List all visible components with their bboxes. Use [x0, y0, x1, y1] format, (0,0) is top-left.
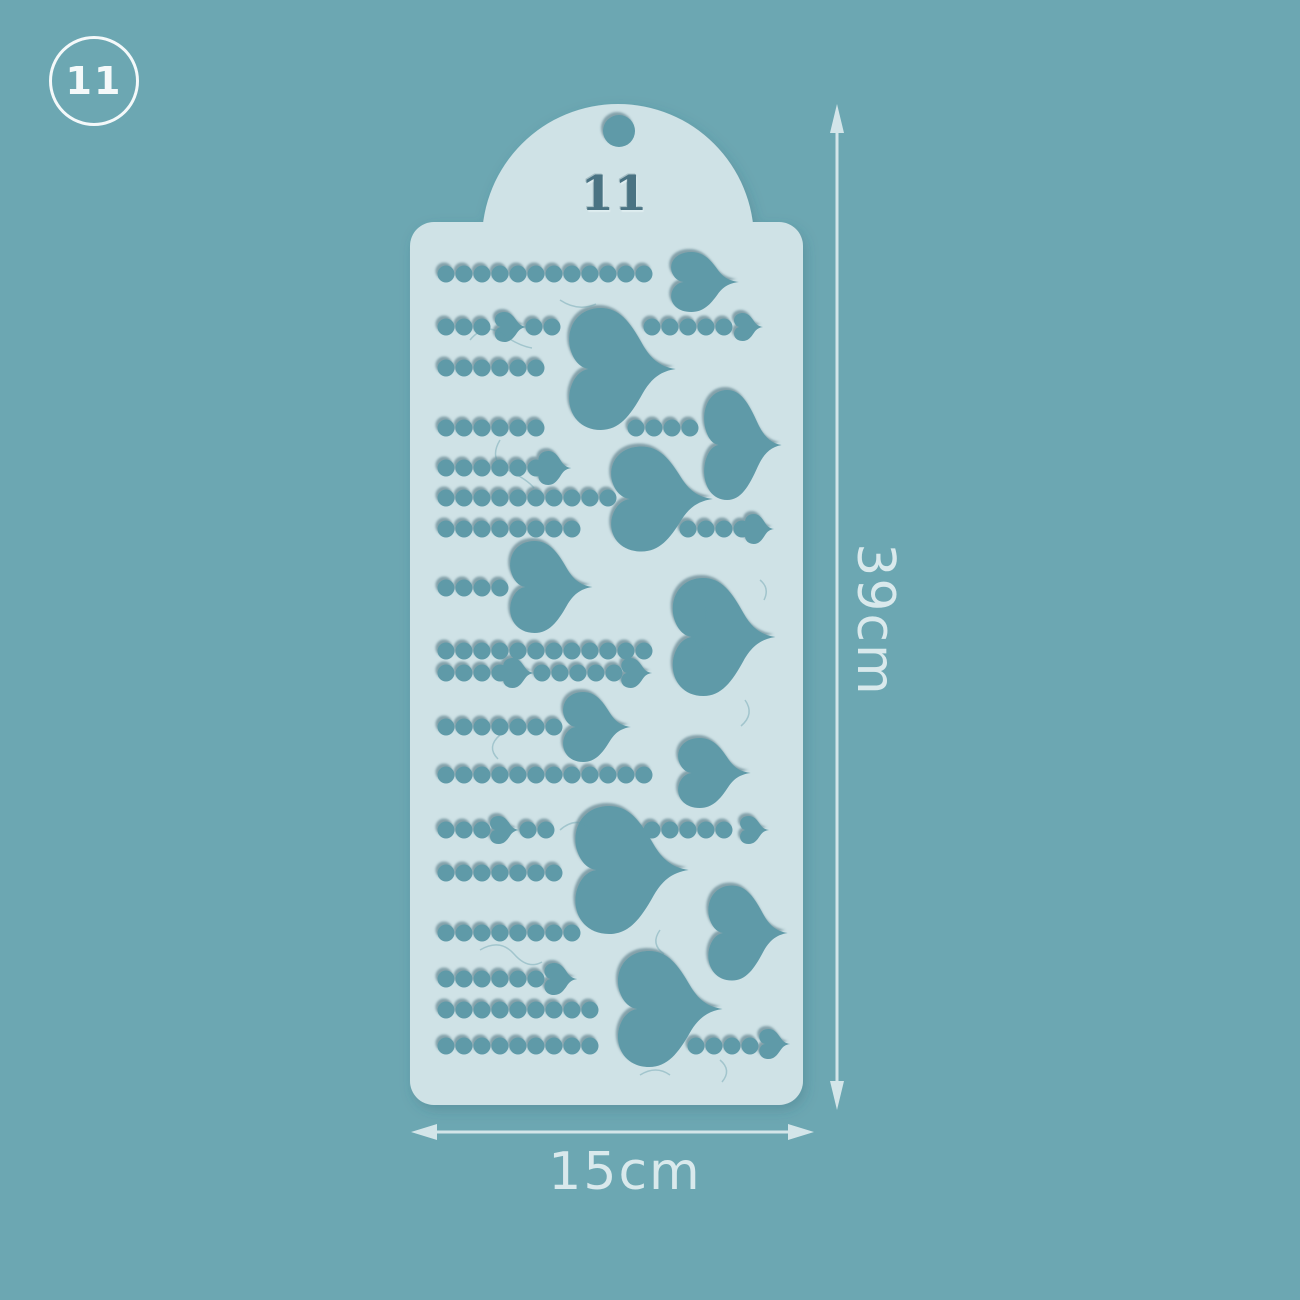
index-badge-number: 11	[66, 59, 123, 103]
bead-dot-cutout	[438, 580, 455, 597]
bead-dot-cutout	[474, 490, 491, 507]
bead-dot-cutout	[600, 643, 617, 660]
bead-dot-cutout	[618, 767, 635, 784]
bead-dot-cutout	[528, 719, 545, 736]
bead-dot-cutout	[456, 580, 473, 597]
bead-dot-cutout	[680, 319, 697, 336]
bead-dot-cutout	[716, 319, 733, 336]
bead-dot-cutout	[716, 822, 733, 839]
bead-dot-cutout	[716, 521, 733, 538]
bead-dot-cutout	[528, 643, 545, 660]
bead-dot-cutout	[456, 643, 473, 660]
bead-dot-cutout	[582, 266, 599, 283]
bead-dot-cutout	[528, 767, 545, 784]
bead-dot-cutout	[618, 643, 635, 660]
bead-dot-cutout	[552, 665, 569, 682]
bead-dot-cutout	[438, 865, 455, 882]
bead-dot-cutout	[438, 420, 455, 437]
bead-dot-cutout	[510, 521, 527, 538]
bead-dot-cutout	[492, 1038, 509, 1055]
bead-dot-cutout	[474, 1002, 491, 1019]
bead-dot-cutout	[438, 643, 455, 660]
bead-dot-cutout	[456, 1002, 473, 1019]
bead-dot-cutout	[438, 319, 455, 336]
bead-dot-cutout	[528, 420, 545, 437]
bead-dot-cutout	[698, 319, 715, 336]
bead-dot-cutout	[546, 266, 563, 283]
bead-dot-cutout	[520, 822, 537, 839]
height-dimension-arrow	[830, 104, 844, 1110]
bead-dot-cutout	[456, 1038, 473, 1055]
bead-dot-cutout	[582, 643, 599, 660]
bead-dot-cutout	[546, 490, 563, 507]
bead-dot-cutout	[438, 266, 455, 283]
bead-dot-cutout	[510, 1038, 527, 1055]
bead-dot-cutout	[644, 319, 661, 336]
bead-dot-cutout	[474, 665, 491, 682]
bead-dot-cutout	[546, 925, 563, 942]
bead-dot-cutout	[742, 1038, 759, 1055]
bead-dot-cutout	[456, 665, 473, 682]
bead-dot-cutout	[510, 460, 527, 477]
bead-dot-cutout	[510, 865, 527, 882]
bead-dot-cutout	[582, 490, 599, 507]
bead-dot-cutout	[474, 925, 491, 942]
bead-dot-cutout	[546, 1002, 563, 1019]
bead-dot-cutout	[438, 971, 455, 988]
bead-dot-cutout	[456, 490, 473, 507]
width-dimension-arrow	[411, 1124, 814, 1140]
bead-dot-cutout	[510, 266, 527, 283]
bead-dot-cutout	[474, 767, 491, 784]
bead-dot-cutout	[564, 767, 581, 784]
bead-dot-cutout	[492, 460, 509, 477]
bead-dot-cutout	[510, 643, 527, 660]
bead-dot-cutout	[636, 767, 653, 784]
bead-dot-cutout	[510, 360, 527, 377]
bead-dot-cutout	[438, 460, 455, 477]
bead-dot-cutout	[564, 1002, 581, 1019]
bead-dot-cutout	[528, 1002, 545, 1019]
bead-dot-cutout	[546, 521, 563, 538]
bead-dot-cutout	[456, 822, 473, 839]
bead-dot-cutout	[636, 643, 653, 660]
bead-dot-cutout	[492, 420, 509, 437]
engraved-number: 11	[554, 166, 674, 222]
bead-dot-cutout	[564, 521, 581, 538]
bead-dot-cutout	[510, 420, 527, 437]
bead-dot-cutout	[538, 822, 555, 839]
bead-dot-cutout	[438, 719, 455, 736]
bead-dot-cutout	[564, 490, 581, 507]
bead-dot-cutout	[564, 643, 581, 660]
bead-dot-cutout	[474, 865, 491, 882]
bead-dot-cutout	[456, 460, 473, 477]
bead-dot-cutout	[564, 1038, 581, 1055]
bead-dot-cutout	[456, 521, 473, 538]
bead-dot-cutout	[664, 420, 681, 437]
bead-dot-cutout	[474, 719, 491, 736]
bead-dot-cutout	[646, 420, 663, 437]
bead-dot-cutout	[526, 319, 543, 336]
bead-dot-cutout	[456, 865, 473, 882]
bead-dot-cutout	[492, 580, 509, 597]
bead-dot-cutout	[534, 665, 551, 682]
bead-dot-cutout	[600, 490, 617, 507]
bead-dot-cutout	[510, 767, 527, 784]
bead-dot-cutout	[492, 865, 509, 882]
bead-dot-cutout	[528, 925, 545, 942]
bead-dot-cutout	[544, 319, 561, 336]
bead-dot-cutout	[492, 643, 509, 660]
bead-dot-cutout	[492, 1002, 509, 1019]
bead-dot-cutout	[438, 1002, 455, 1019]
bead-dot-cutout	[564, 266, 581, 283]
bead-dot-cutout	[474, 1038, 491, 1055]
bead-dot-cutout	[662, 822, 679, 839]
bead-dot-cutout	[600, 767, 617, 784]
bead-dot-cutout	[492, 266, 509, 283]
bead-dot-cutout	[546, 643, 563, 660]
bead-dot-cutout	[456, 767, 473, 784]
bead-dot-cutout	[456, 266, 473, 283]
bead-dot-cutout	[510, 490, 527, 507]
bead-dot-cutout	[582, 1002, 599, 1019]
bead-dot-cutout	[618, 266, 635, 283]
bead-dot-cutout	[474, 319, 491, 336]
bead-dot-cutout	[474, 360, 491, 377]
bead-dot-cutout	[510, 925, 527, 942]
bead-dot-cutout	[528, 360, 545, 377]
bead-dot-cutout	[492, 360, 509, 377]
bead-dot-cutout	[528, 521, 545, 538]
bead-dot-cutout	[474, 822, 491, 839]
bead-dot-cutout	[474, 971, 491, 988]
bead-dot-cutout	[546, 1038, 563, 1055]
product-image: 11 11 39cm 15cm	[0, 0, 1300, 1300]
bead-dot-cutout	[600, 266, 617, 283]
bead-dot-cutout	[438, 360, 455, 377]
bead-dot-cutout	[456, 319, 473, 336]
bead-dot-cutout	[510, 1002, 527, 1019]
bead-dot-cutout	[474, 643, 491, 660]
bead-dot-cutout	[528, 1038, 545, 1055]
hang-hole	[603, 115, 635, 147]
bead-dot-cutout	[438, 1038, 455, 1055]
bead-dot-cutout	[438, 822, 455, 839]
bead-dot-cutout	[510, 719, 527, 736]
bead-dot-cutout	[628, 420, 645, 437]
bead-dot-cutout	[456, 971, 473, 988]
bead-dot-cutout	[588, 665, 605, 682]
bead-dot-cutout	[528, 490, 545, 507]
height-dimension-label: 39cm	[845, 540, 905, 700]
bead-dot-cutout	[510, 971, 527, 988]
bead-dot-cutout	[474, 420, 491, 437]
bead-dot-cutout	[474, 460, 491, 477]
bead-dot-cutout	[474, 521, 491, 538]
bead-dot-cutout	[438, 925, 455, 942]
bead-dot-cutout	[456, 719, 473, 736]
bead-dot-cutout	[438, 767, 455, 784]
bead-dot-cutout	[698, 822, 715, 839]
bead-dot-cutout	[680, 521, 697, 538]
bead-dot-cutout	[456, 360, 473, 377]
bead-dot-cutout	[564, 925, 581, 942]
bead-dot-cutout	[438, 521, 455, 538]
index-badge: 11	[49, 36, 139, 126]
bead-dot-cutout	[662, 319, 679, 336]
bead-dot-cutout	[438, 665, 455, 682]
bead-dot-cutout	[698, 521, 715, 538]
bead-dot-cutout	[546, 719, 563, 736]
bead-dot-cutout	[606, 665, 623, 682]
bead-dot-cutout	[636, 266, 653, 283]
bead-dot-cutout	[688, 1038, 705, 1055]
bead-dot-cutout	[528, 971, 545, 988]
bead-dot-cutout	[680, 822, 697, 839]
bead-dot-cutout	[528, 865, 545, 882]
bead-dot-cutout	[528, 266, 545, 283]
bead-dot-cutout	[492, 925, 509, 942]
bead-dot-cutout	[474, 266, 491, 283]
bead-dot-cutout	[546, 865, 563, 882]
bead-dot-cutout	[492, 521, 509, 538]
bead-dot-cutout	[724, 1038, 741, 1055]
bead-dot-cutout	[582, 767, 599, 784]
bead-dot-cutout	[492, 971, 509, 988]
bead-dot-cutout	[682, 420, 699, 437]
bead-dot-cutout	[474, 580, 491, 597]
bead-dot-cutout	[582, 1038, 599, 1055]
bead-dot-cutout	[456, 925, 473, 942]
bead-dot-cutout	[546, 767, 563, 784]
width-dimension-label: 15cm	[545, 1142, 705, 1202]
bead-dot-cutout	[456, 420, 473, 437]
bead-dot-cutout	[570, 665, 587, 682]
bead-dot-cutout	[438, 490, 455, 507]
bead-dot-cutout	[706, 1038, 723, 1055]
bead-dot-cutout	[492, 767, 509, 784]
bead-dot-cutout	[492, 490, 509, 507]
bead-dot-cutout	[492, 719, 509, 736]
